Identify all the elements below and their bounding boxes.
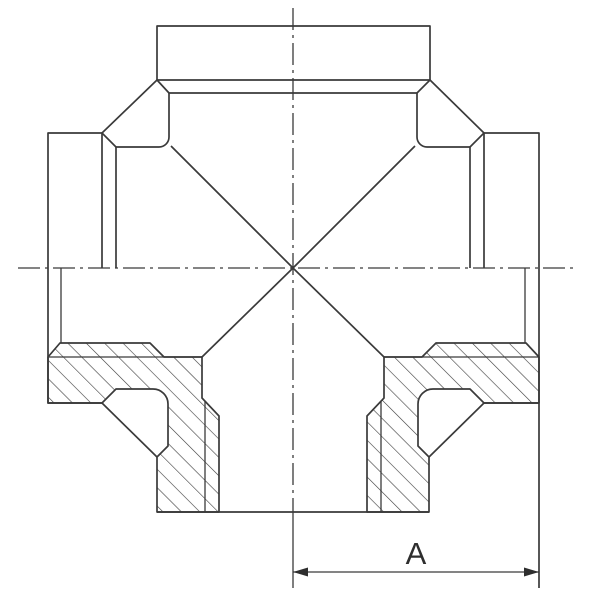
body-corner-top-left: [116, 93, 169, 147]
body-corner-top-right: [417, 93, 470, 147]
cross-fitting-technical-drawing: A: [0, 0, 600, 600]
dimension-a: A: [293, 512, 539, 588]
left-band-chamfer: [102, 133, 116, 147]
dimension-arrow-right: [524, 568, 539, 577]
drawing-page: A: [0, 0, 600, 600]
dimension-arrow-left: [293, 568, 308, 577]
rib-edge-bottom-left: [102, 403, 157, 457]
hatch-region-left-wall: [48, 343, 219, 512]
rib-chamfer-top-left: [102, 80, 157, 133]
right-band-chamfer: [470, 133, 484, 147]
dimension-label: A: [406, 536, 427, 571]
rib-edge-bottom-right: [429, 403, 484, 457]
top-band-chamfer-right: [417, 80, 430, 93]
hatch-region-right-wall: [367, 343, 539, 512]
rib-chamfer-top-right: [430, 80, 484, 133]
top-band-chamfer-left: [157, 80, 169, 93]
